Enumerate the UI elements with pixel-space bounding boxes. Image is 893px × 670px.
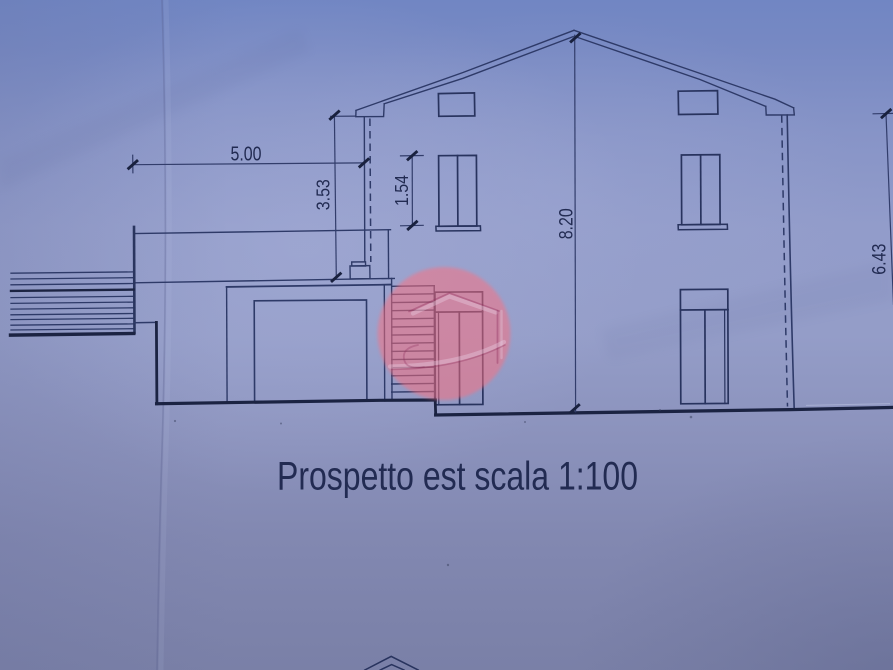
svg-text:1.54: 1.54 [392,175,412,206]
svg-text:8.20: 8.20 [557,208,578,239]
svg-text:6.43: 6.43 [868,244,890,275]
svg-text:Prospetto est scala 1:100: Prospetto est scala 1:100 [277,455,638,499]
svg-text:3.53: 3.53 [313,179,334,210]
svg-text:5.00: 5.00 [231,142,262,165]
